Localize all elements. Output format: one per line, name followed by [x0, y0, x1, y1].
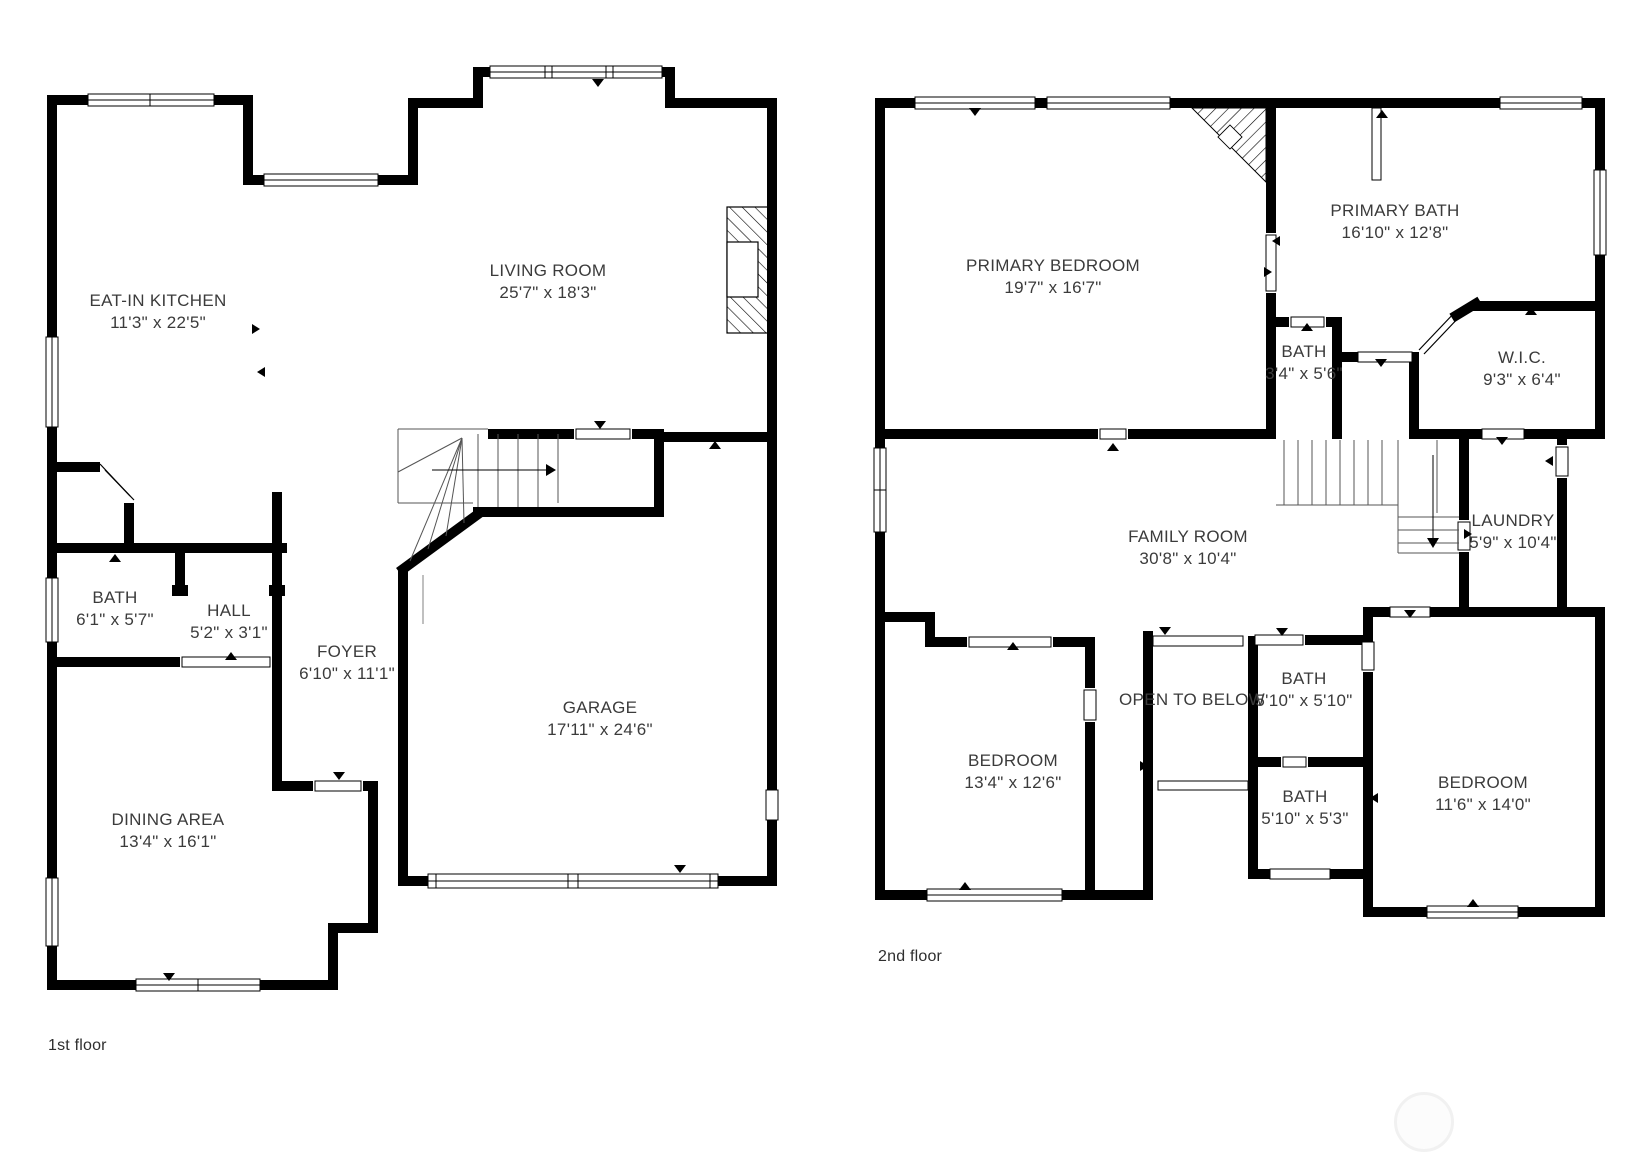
caption-second-floor: 2nd floor [878, 948, 942, 966]
caption-first-floor: 1st floor [48, 1037, 107, 1055]
room-label-living-room: LIVING ROOM25'7" x 18'3" [490, 260, 607, 304]
fireplace [727, 207, 768, 333]
room-label-family-room: FAMILY ROOM30'8" x 10'4" [1128, 526, 1248, 570]
room-label-garage: GARAGE17'11" x 24'6" [547, 697, 653, 741]
room-label-bath-upper: BATH3'4" x 5'6" [1265, 341, 1343, 385]
room-label-primary-bedroom: PRIMARY BEDROOM19'7" x 16'7" [966, 255, 1140, 299]
room-label-bedroom-right: BEDROOM11'6" x 14'0" [1435, 772, 1531, 816]
room-label-foyer: FOYER6'10" x 11'1" [299, 641, 395, 685]
staircase-first-floor [398, 429, 558, 561]
stair-direction-arrow [546, 464, 556, 476]
room-label-bath-1f: BATH6'1" x 5'7" [76, 587, 154, 631]
room-label-open-to-below: OPEN TO BELOW [1119, 689, 1265, 711]
watermark-circle [1394, 1092, 1454, 1152]
room-label-bath-mid: BATH5'10" x 5'10" [1255, 668, 1352, 712]
room-label-primary-bath: PRIMARY BATH16'10" x 12'8" [1330, 200, 1459, 244]
room-label-dining-area: DINING AREA13'4" x 16'1" [112, 809, 225, 853]
bath-partition [1372, 108, 1381, 180]
room-label-bath-lower: BATH5'10" x 5'3" [1261, 786, 1348, 830]
room-label-wic: W.I.C.9'3" x 6'4" [1483, 347, 1561, 391]
floorplan-canvas: EAT-IN KITCHEN11'3" x 22'5" LIVING ROOM2… [0, 0, 1650, 1163]
room-label-eat-in-kitchen: EAT-IN KITCHEN11'3" x 22'5" [89, 290, 226, 334]
corner-closet-hatch [1192, 108, 1266, 182]
floorplan-drawing [0, 0, 1650, 1163]
room-label-hall: HALL5'2" x 3'1" [190, 600, 268, 644]
room-label-laundry: LAUNDRY5'9" x 10'4" [1469, 510, 1556, 554]
room-label-bedroom-left: BEDROOM13'4" x 12'6" [964, 750, 1061, 794]
staircase-second-floor [1276, 440, 1459, 553]
